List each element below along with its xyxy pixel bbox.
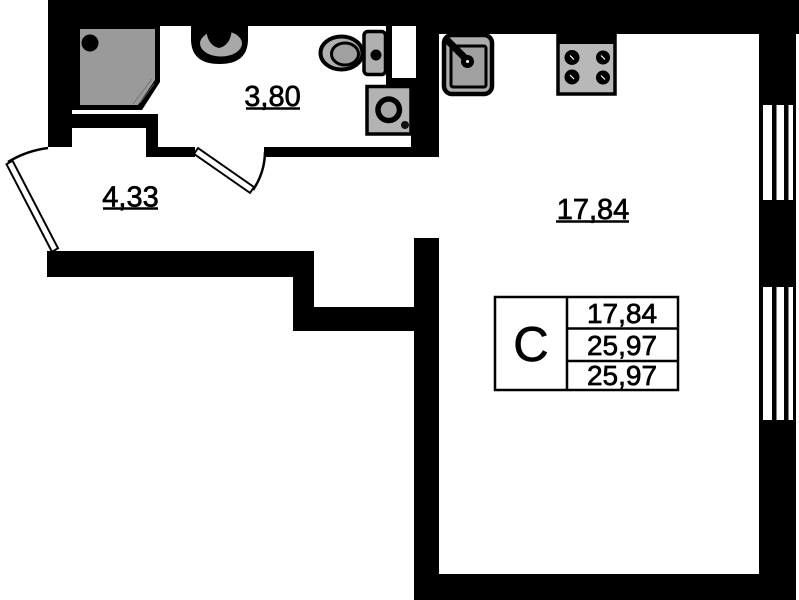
svg-text:25,97: 25,97 xyxy=(587,330,657,361)
svg-text:25,97: 25,97 xyxy=(587,360,657,391)
svg-text:17,84: 17,84 xyxy=(587,298,657,329)
svg-text:C: C xyxy=(513,318,548,372)
